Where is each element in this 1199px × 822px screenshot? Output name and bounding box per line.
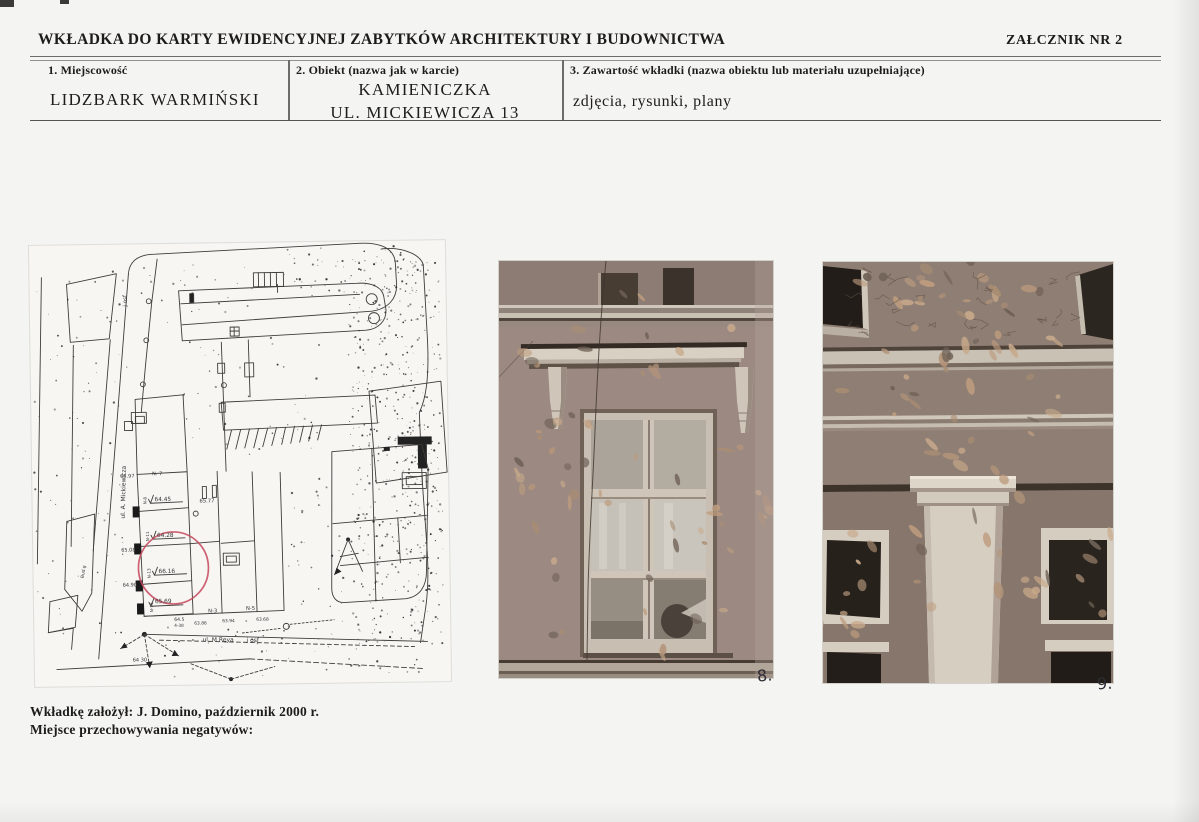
svg-text:4-38: 4-38	[174, 623, 184, 628]
header-rule	[30, 56, 1161, 61]
site-plan-labels: j osful. A. Mickiewicza65.97N. 7N-864.45…	[76, 292, 270, 664]
svg-text:ul. M Reya: ul. M Reya	[202, 637, 234, 644]
svg-text:66.16: 66.16	[158, 569, 175, 575]
svg-text:63.86: 63.86	[194, 620, 207, 626]
field-locality-label: 1. Miejscowość	[48, 63, 127, 78]
footer-negatives-line: Miejsce przechowywania negatywów:	[30, 721, 319, 739]
field-contents-label: 3. Zawartość wkładki (nazwa obiektu lub …	[570, 63, 925, 78]
svg-text:64.28: 64.28	[157, 533, 174, 539]
svg-text:j osf: j osf	[245, 637, 259, 644]
svg-text:63.68: 63.68	[256, 617, 269, 623]
stipple-texture	[30, 244, 446, 679]
svg-text:65.97: 65.97	[120, 473, 134, 479]
svg-text:64.45: 64.45	[154, 497, 171, 503]
site-plan-drawing: j osful. A. Mickiewicza65.97N. 7N-864.45…	[29, 240, 451, 687]
svg-text:65.69: 65.69	[155, 599, 172, 605]
svg-text:j osf: j osf	[123, 294, 129, 308]
photo-pilaster-detail	[823, 262, 1113, 683]
svg-text:N-3: N-3	[208, 608, 217, 614]
highlight-circle	[138, 531, 209, 604]
footer-author-line: Wkładkę założył: J. Domino, październik …	[30, 703, 319, 721]
scan-edge-mark	[60, 0, 69, 4]
svg-text:63.94: 63.94	[222, 618, 235, 624]
footer-notes: Wkładkę założył: J. Domino, październik …	[30, 703, 319, 739]
svg-text:N-13: N-13	[146, 568, 151, 578]
flanking-window	[823, 530, 889, 683]
svg-text:65.08: 65.08	[121, 547, 135, 553]
page-title: WKŁADKA DO KARTY EWIDENCYJNEJ ZABYTKÓW A…	[38, 31, 725, 49]
window-hood-cornice	[521, 342, 747, 369]
scan-shadow-bottom	[0, 802, 1199, 822]
svg-text:64 30: 64 30	[133, 657, 147, 663]
site-plan-map: j osful. A. Mickiewicza65.97N. 7N-864.45…	[29, 240, 451, 687]
scan-edge-mark	[0, 0, 14, 7]
photo-window-cornice	[499, 261, 773, 678]
field-contents-value: zdjęcia, rysunki, plany	[573, 93, 732, 111]
svg-text:N-15: N-15	[149, 602, 154, 612]
table-divider	[562, 60, 564, 120]
window-sill	[583, 653, 733, 658]
svg-text:N-8: N-8	[142, 497, 147, 505]
field-object-address: UL. MICKIEWICZA 13	[288, 103, 562, 123]
svg-text:N-5: N-5	[246, 606, 255, 612]
svg-text:N. 7: N. 7	[152, 471, 162, 477]
field-object-name: KAMIENICZKA	[288, 80, 562, 100]
svg-text:65.77: 65.77	[199, 498, 214, 504]
flanking-window	[1041, 528, 1113, 683]
field-object-label: 2. Obiekt (nazwa jak w karcie)	[296, 63, 459, 78]
svg-text:64.90: 64.90	[123, 582, 137, 588]
upper-window	[823, 266, 863, 328]
annex-label: ZAŁCZNIK NR 2	[1006, 33, 1123, 49]
svg-text:Bud.g: Bud.g	[80, 565, 88, 579]
table-bottom-rule	[30, 120, 1161, 121]
field-locality-value: LIDZBARK WARMIŃSKI	[50, 90, 260, 110]
svg-text:N-11: N-11	[145, 531, 150, 541]
photo-number-8: 8.	[756, 665, 773, 685]
photo-number-9: 9.	[1097, 674, 1113, 694]
scan-shadow-right	[1173, 0, 1199, 822]
